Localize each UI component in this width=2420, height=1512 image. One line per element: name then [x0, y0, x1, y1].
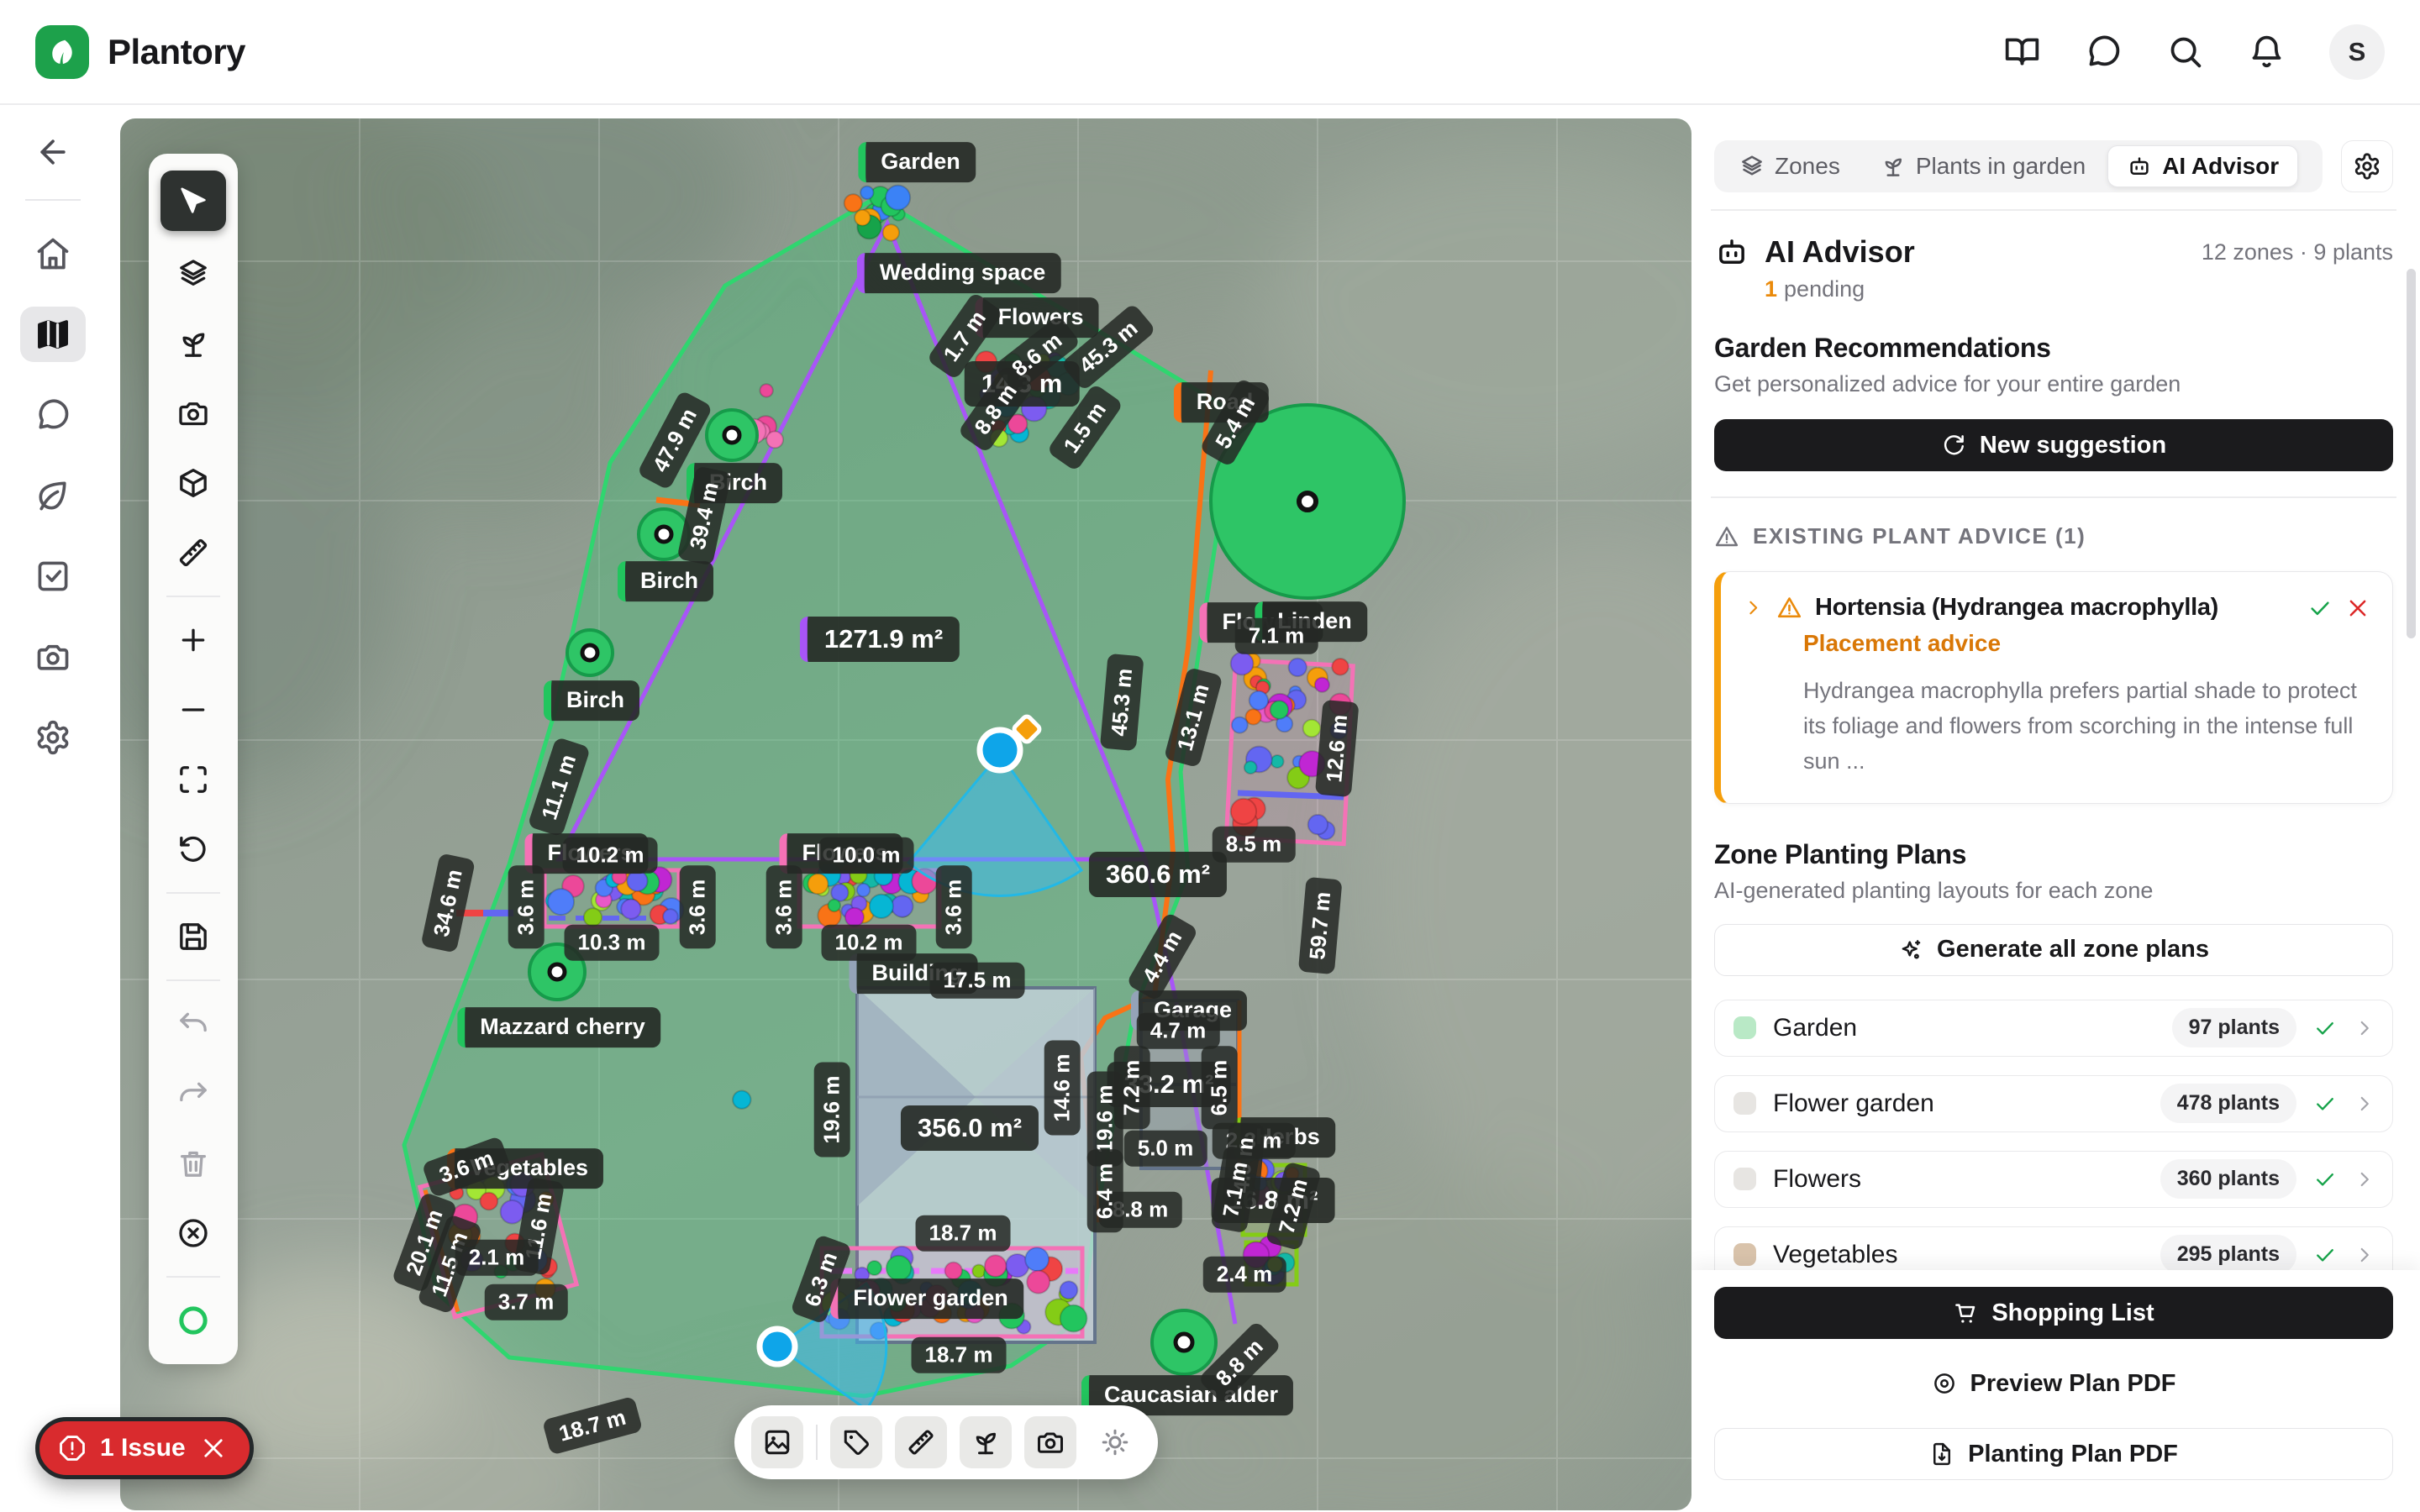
sidebar-nav [20, 226, 86, 765]
check-icon [2307, 596, 2333, 621]
sprout-icon [176, 327, 210, 360]
zone-plant-count: 295 plants [2160, 1235, 2296, 1274]
map-tool-layers[interactable] [165, 247, 222, 301]
maximize-icon [176, 763, 210, 796]
check-icon [2313, 1243, 2337, 1267]
accept-advice-button[interactable] [2307, 596, 2333, 621]
zone-name: Garden [1773, 1014, 1857, 1042]
plantory-app: Plantory S [0, 0, 2420, 1512]
circle-ring-icon [176, 1304, 210, 1337]
right-panel: ZonesPlants in gardenAI Advisor AI Advis… [1691, 107, 2420, 1512]
map-tool-redo[interactable] [165, 1067, 222, 1121]
chevron-right-icon[interactable] [2354, 1017, 2375, 1039]
map-tool-reset-view[interactable] [165, 822, 222, 876]
sidebar-item-settings[interactable] [20, 710, 86, 765]
advice-category: Placement advice [1803, 630, 2370, 657]
expand-chevron-icon[interactable] [1743, 597, 1764, 618]
map-tool-plant[interactable] [960, 1416, 1012, 1468]
toolbar-divider [166, 979, 220, 981]
camera-icon [34, 638, 71, 675]
sprout-icon [1881, 154, 1906, 179]
zone-plant-count: 360 plants [2160, 1159, 2296, 1199]
settings-icon [34, 719, 71, 756]
topbar: Plantory S [0, 0, 2420, 105]
advice-section-header: EXISTING PLANT ADVICE (1) [1714, 523, 2393, 549]
dismiss-advice-button[interactable] [2345, 596, 2370, 621]
map-tool-photo[interactable] [165, 386, 222, 440]
zone-plans-subtitle: AI-generated planting layouts for each z… [1714, 878, 2393, 904]
shopping-list-button[interactable]: Shopping List [1714, 1287, 2393, 1339]
zone-plant-count: 478 plants [2160, 1084, 2296, 1123]
message-circle-icon [34, 396, 71, 433]
sidebar-divider [25, 199, 81, 201]
map-tool-add-plant[interactable] [165, 317, 222, 370]
alert-octagon-icon [58, 1434, 87, 1462]
warning-icon [1776, 595, 1802, 621]
search-icon [2166, 33, 2204, 71]
sidebar-item-home[interactable] [20, 226, 86, 281]
file-download-icon [1929, 1441, 1954, 1467]
issue-badge[interactable]: 1 Issue [35, 1417, 254, 1479]
advisor-header: AI Advisor 12 zones · 9 plants [1714, 234, 2393, 270]
home-icon [34, 235, 71, 272]
ruler-icon [176, 536, 210, 570]
chevron-right-icon[interactable] [2354, 1168, 2375, 1190]
preview-plan-pdf-button[interactable]: Preview Plan PDF [1714, 1357, 2393, 1410]
map-tool-measure[interactable] [895, 1416, 947, 1468]
tag-icon [841, 1427, 871, 1457]
zone-color-dot [1733, 1168, 1756, 1190]
zone-plan-row[interactable]: Flowers 360 plants [1714, 1151, 2393, 1208]
zone-plant-count: 97 plants [2172, 1008, 2296, 1047]
sprout-icon [971, 1427, 1001, 1457]
zone-plan-row[interactable]: Flower garden 478 plants [1714, 1075, 2393, 1132]
advice-body: Hydrangea macrophylla prefers partial sh… [1803, 674, 2370, 780]
refresh-icon [1941, 433, 1966, 458]
map-tool-zoom-in[interactable] [165, 613, 222, 667]
minus-icon [176, 693, 210, 727]
garage-footprint[interactable] [1141, 1000, 1239, 1168]
topbar-actions [2003, 33, 2286, 71]
pending-status: 1pending [1765, 276, 2393, 302]
camera-icon [1035, 1427, 1065, 1457]
advice-section-title: EXISTING PLANT ADVICE (1) [1753, 523, 2086, 549]
panel-settings-button[interactable] [2341, 140, 2393, 192]
guide-button[interactable] [2003, 33, 2041, 71]
map-graphics [120, 118, 1691, 1510]
app-title: Plantory [108, 32, 245, 72]
redo-icon [176, 1077, 210, 1110]
x-icon [2345, 596, 2370, 621]
map-tool-delete[interactable] [165, 1137, 222, 1190]
zone-color-dot [1733, 1016, 1756, 1039]
back-button[interactable] [34, 134, 71, 171]
robot-icon [1714, 234, 1749, 270]
sidebar-item-tasks[interactable] [20, 549, 86, 604]
layers-icon [176, 257, 210, 291]
bot-icon [2127, 154, 2152, 179]
advice-plant-name: Hortensia (Hydrangea macrophylla) [1815, 594, 2295, 622]
map-tool-select[interactable] [160, 171, 226, 231]
map-toolbar [149, 154, 238, 1364]
toolbar-divider [166, 892, 220, 894]
zone-plans-title: Zone Planting Plans [1714, 839, 2393, 870]
recommendations-subtitle: Get personalized advice for your entire … [1714, 371, 2393, 397]
zone-color-dot [1733, 1243, 1756, 1266]
issue-close-button[interactable] [199, 1434, 228, 1462]
tab-zones[interactable]: Zones [1721, 145, 1859, 187]
plant-advice-card[interactable]: Hortensia (Hydrangea macrophylla) Placem… [1714, 571, 2393, 804]
preview-icon [1932, 1371, 1957, 1396]
toolbar-divider [166, 1276, 220, 1278]
check-icon [2313, 1016, 2337, 1040]
map-bottom-toolbar [734, 1405, 1158, 1479]
layers-icon [1739, 154, 1765, 179]
leaf-logo-icon [44, 34, 81, 71]
sidebar-item-plants[interactable] [20, 468, 86, 523]
left-sidebar [0, 107, 105, 1512]
leaf-icon [34, 477, 71, 514]
panel-tabs-row: ZonesPlants in gardenAI Advisor [1714, 140, 2393, 192]
mouse-pointer-icon [176, 184, 210, 218]
bell-icon [2248, 33, 2286, 71]
new-suggestion-button[interactable]: New suggestion [1714, 419, 2393, 471]
advisor-meta: 12 zones · 9 plants [2202, 239, 2393, 265]
sidebar-item-chat[interactable] [20, 387, 86, 443]
check-icon [2313, 1092, 2337, 1116]
ruler-icon [906, 1427, 936, 1457]
book-open-icon [2003, 33, 2041, 71]
camera-icon [176, 396, 210, 430]
sidebar-item-photos[interactable] [20, 629, 86, 685]
map-tool-view-3d[interactable] [165, 456, 222, 510]
close-icon [199, 1434, 228, 1462]
map-tool-tag[interactable] [830, 1416, 882, 1468]
pending-count: 1 [1765, 276, 1777, 302]
check-square-icon [34, 558, 71, 595]
sidebar-item-map[interactable] [20, 307, 86, 362]
zone-name: Vegetables [1773, 1241, 1897, 1269]
map-tool-cancel[interactable] [165, 1206, 222, 1260]
gear-icon [2353, 152, 2381, 181]
panel-tab-control: ZonesPlants in gardenAI Advisor [1714, 140, 2323, 192]
alert-triangle-icon [1714, 524, 1739, 549]
stage: Flower gardenFlowersFlowersFlowersGarden… [105, 107, 2420, 1512]
sun-icon [1100, 1427, 1130, 1457]
chevron-right-icon[interactable] [2354, 1093, 2375, 1115]
generate-all-plans-button[interactable]: Generate all zone plans [1714, 924, 2393, 976]
toolbar-divider [816, 1425, 818, 1460]
zone-color-dot [1733, 1092, 1756, 1115]
user-avatar[interactable]: S [2329, 24, 2385, 80]
x-circle-icon [176, 1216, 210, 1250]
map-tool-undo[interactable] [165, 997, 222, 1051]
issue-count: 1 Issue [100, 1434, 186, 1462]
tab-ai-advisor[interactable]: AI Advisor [2107, 145, 2298, 187]
section-divider [1711, 496, 2396, 498]
tab-plants-in-garden[interactable]: Plants in garden [1862, 145, 2104, 187]
panel-divider [1711, 209, 2396, 211]
notifications-button[interactable] [2248, 33, 2286, 71]
map-tool-brightness[interactable] [1089, 1416, 1141, 1468]
image-icon [762, 1427, 792, 1457]
zone-name: Flowers [1773, 1165, 1861, 1194]
panel-footer: Shopping List Preview Plan PDF Planting … [1691, 1270, 2420, 1512]
chevron-right-icon[interactable] [2354, 1244, 2375, 1266]
map-tool-fullscreen[interactable] [165, 753, 222, 806]
message-circle-icon [2085, 33, 2123, 71]
map-filled-icon [34, 316, 71, 353]
messages-button[interactable] [2085, 33, 2123, 71]
recommendations-title: Garden Recommendations [1714, 333, 2393, 364]
app-logo [35, 25, 89, 79]
check-icon [2313, 1168, 2337, 1191]
panel-scrollbar[interactable] [2407, 269, 2416, 638]
map-tool-camera[interactable] [1024, 1416, 1076, 1468]
toolbar-divider [166, 596, 220, 597]
sparkles-icon [1898, 937, 1923, 963]
undo-icon [176, 1007, 210, 1041]
zone-name: Flower garden [1773, 1089, 1934, 1118]
shopping-cart-icon [1953, 1300, 1978, 1326]
map-canvas[interactable]: Flower gardenFlowersFlowersFlowersGarden… [120, 118, 1691, 1510]
rotate-ccw-icon [176, 832, 210, 866]
planting-plan-pdf-button[interactable]: Planting Plan PDF [1714, 1428, 2393, 1480]
map-tool-measure[interactable] [165, 526, 222, 580]
map-tool-save[interactable] [165, 910, 222, 963]
map-tool-background-image[interactable] [751, 1416, 803, 1468]
plus-icon [176, 623, 210, 657]
save-icon [176, 920, 210, 953]
advisor-title: AI Advisor [1765, 234, 1915, 270]
map-tool-locate[interactable] [165, 1294, 222, 1347]
cube-icon [176, 466, 210, 500]
zone-plan-row[interactable]: Garden 97 plants [1714, 1000, 2393, 1057]
map-tool-zoom-out[interactable] [165, 683, 222, 737]
search-button[interactable] [2166, 33, 2204, 71]
pending-label: pending [1784, 276, 1865, 302]
trash-icon [176, 1147, 210, 1180]
